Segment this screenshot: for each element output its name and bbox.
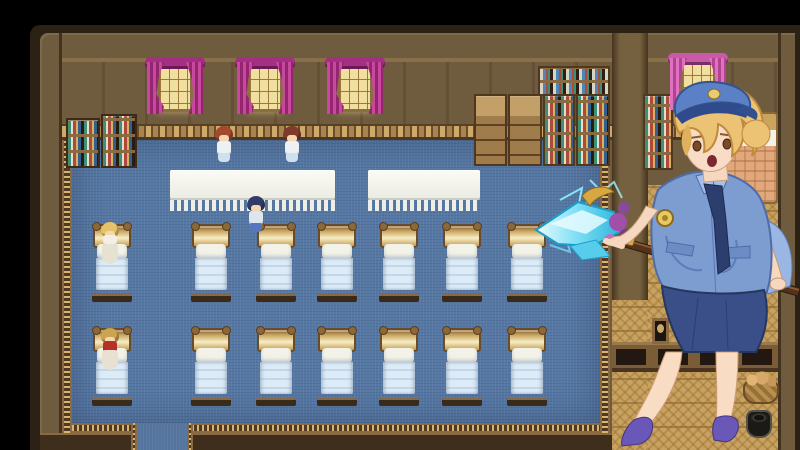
bed-pillow — [447, 348, 477, 363]
sprite-nurse-maroon[interactable] — [282, 126, 302, 162]
bottom-wall — [40, 433, 612, 450]
bed-pillow — [322, 348, 352, 363]
bed-blanket — [321, 258, 353, 290]
bed-blanket — [383, 258, 415, 290]
bed-footboard — [317, 398, 357, 406]
bed-blanket — [446, 258, 478, 290]
cabinet-drawers-1[interactable] — [474, 94, 507, 166]
bed-row1-5[interactable] — [380, 224, 418, 302]
sprite-legs — [250, 223, 262, 232]
window-magenta-3 — [327, 60, 383, 118]
bed-pillow — [196, 244, 226, 259]
sprite-girl-navy-hair-back[interactable] — [246, 196, 266, 232]
bed-pillow — [447, 244, 477, 259]
sprite-patient-blonde[interactable] — [100, 222, 120, 266]
bed-footboard — [379, 398, 419, 406]
bed-blanket — [446, 362, 478, 394]
bed-row1-2[interactable] — [192, 224, 230, 302]
bed-blanket — [260, 258, 292, 290]
bed-footboard — [379, 294, 419, 302]
door-border-left — [131, 423, 137, 450]
white-table-2 — [368, 170, 480, 200]
bed-row1-6[interactable] — [443, 224, 481, 302]
bed-row1-4[interactable] — [318, 224, 356, 302]
bed-footboard — [256, 294, 296, 302]
bed-pillow — [196, 348, 226, 363]
bed-footboard — [92, 398, 132, 406]
bed-pillow — [322, 244, 352, 259]
bed-footboard — [442, 294, 482, 302]
sprite-legs — [102, 244, 118, 264]
bed-row2-5[interactable] — [380, 328, 418, 406]
bed-row1-3[interactable] — [257, 224, 295, 302]
bed-footboard — [92, 294, 132, 302]
bed-blanket — [260, 362, 292, 394]
bed-pillow — [261, 348, 291, 363]
potion-shelf-2[interactable] — [101, 114, 137, 168]
potion-shelf-1[interactable] — [66, 118, 100, 168]
bed-blanket — [321, 362, 353, 394]
bed-blanket — [195, 362, 227, 394]
sprite-patient-red-gown[interactable] — [100, 328, 120, 372]
bed-blanket — [383, 362, 415, 394]
bed-footboard — [317, 294, 357, 302]
window-magenta-2 — [237, 60, 293, 118]
bed-row2-3[interactable] — [257, 328, 295, 406]
door-exit-south[interactable] — [137, 423, 187, 450]
bed-blanket — [195, 258, 227, 290]
bed-row2-6[interactable] — [443, 328, 481, 406]
door-border-right — [187, 423, 193, 450]
bed-footboard — [191, 294, 231, 302]
portrait-policewoman — [530, 60, 800, 450]
sprite-legs — [286, 153, 298, 162]
bed-pillow — [384, 348, 414, 363]
bed-pillow — [261, 244, 291, 259]
sprite-nurse-auburn[interactable] — [214, 126, 234, 162]
sprite-legs — [102, 350, 118, 370]
game-viewport[interactable] — [0, 0, 800, 450]
carpet-border-left — [62, 140, 72, 433]
character-body — [606, 172, 792, 446]
bed-row2-4[interactable] — [318, 328, 356, 406]
bed-footboard — [442, 398, 482, 406]
character-head — [674, 82, 770, 182]
bed-footboard — [191, 398, 231, 406]
sprite-legs — [218, 153, 230, 162]
bed-row2-2[interactable] — [192, 328, 230, 406]
bed-pillow — [384, 244, 414, 259]
bed-footboard — [256, 398, 296, 406]
window-magenta-1 — [147, 60, 203, 118]
